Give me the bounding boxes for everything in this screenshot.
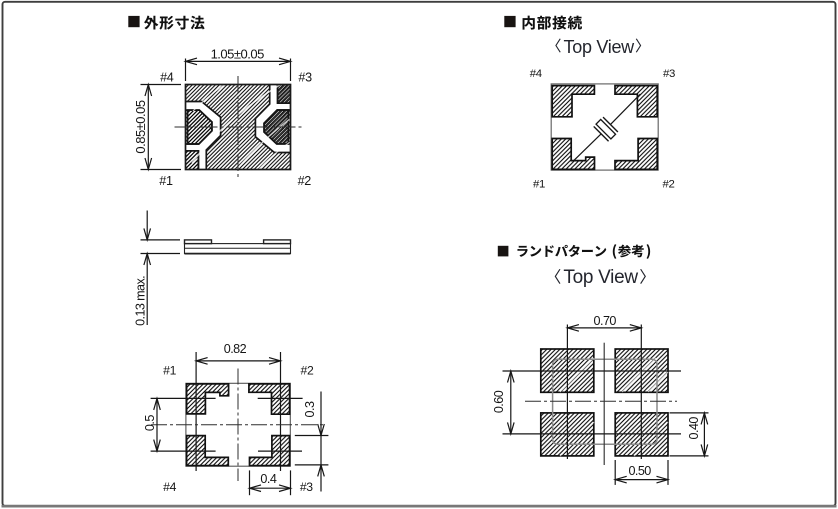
- svg-text:#2: #2: [662, 179, 674, 191]
- svg-text:#2: #2: [301, 364, 314, 378]
- svg-text:#4: #4: [530, 68, 542, 80]
- svg-text:#3: #3: [300, 480, 313, 494]
- svg-text:0.70: 0.70: [594, 314, 617, 328]
- svg-text:0.3: 0.3: [303, 401, 317, 418]
- svg-text:#3: #3: [298, 70, 312, 84]
- svg-text:0.4: 0.4: [260, 472, 277, 486]
- svg-text:#4: #4: [160, 70, 174, 84]
- svg-text:0.5: 0.5: [143, 415, 157, 432]
- svg-text:Top View: Top View: [564, 37, 636, 57]
- svg-text:0.82: 0.82: [224, 342, 247, 356]
- svg-text:#1: #1: [533, 179, 545, 191]
- svg-text:Top View: Top View: [563, 267, 638, 288]
- svg-text:0.40: 0.40: [687, 417, 701, 440]
- svg-text:0.85±0.05: 0.85±0.05: [133, 100, 148, 154]
- svg-text:#3: #3: [663, 68, 675, 80]
- svg-text:#4: #4: [163, 480, 176, 494]
- svg-text:#1: #1: [159, 174, 173, 188]
- svg-text:#2: #2: [298, 174, 312, 188]
- svg-text:0.13 max.: 0.13 max.: [133, 276, 147, 326]
- svg-text:#1: #1: [163, 364, 176, 378]
- svg-text:0.50: 0.50: [628, 464, 651, 478]
- svg-text:1.05±0.05: 1.05±0.05: [211, 46, 265, 61]
- svg-text:0.60: 0.60: [492, 390, 506, 413]
